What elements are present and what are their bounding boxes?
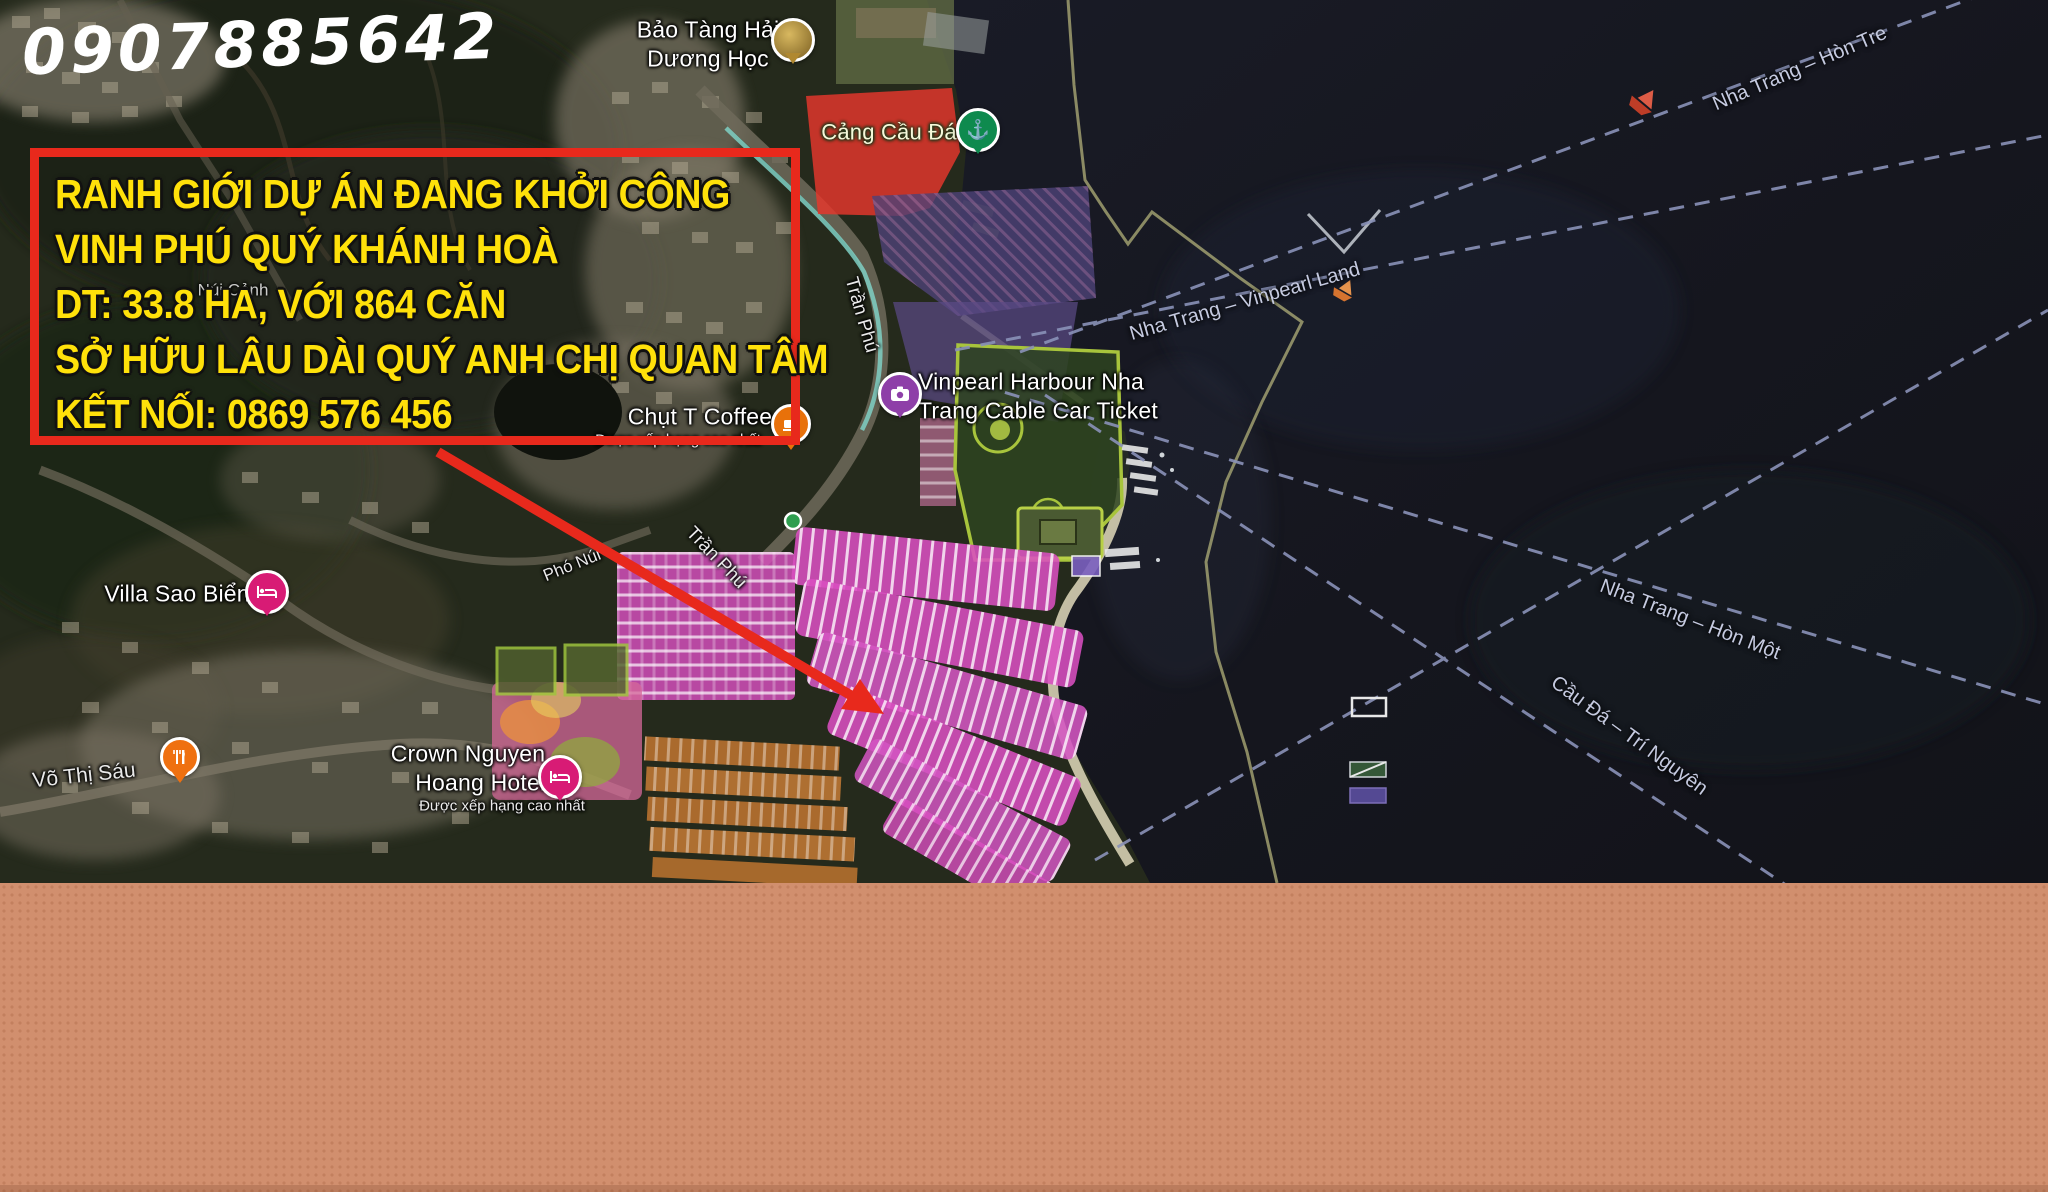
- sea-marker-purple: [1350, 788, 1386, 803]
- promo-screenshot-root: Núi Cảnh Trần Phú Trần Phú Phó Núi Võ Th…: [0, 0, 2048, 1192]
- poi-label-vinpearl-harbour[interactable]: Vinpearl Harbour NhaTrang Cable Car Tick…: [918, 367, 1158, 425]
- project-callout-box: RANH GIỚI DỰ ÁN ĐANG KHỞI CÔNG VINH PHÚ …: [30, 148, 800, 445]
- photo-circle-icon[interactable]: [771, 18, 815, 62]
- callout-line-4: SỞ HỮU LÂU DÀI QUÝ ANH CHỊ QUAN TÂM: [55, 332, 732, 387]
- camera-icon[interactable]: [878, 372, 922, 416]
- sea-marker-flag: [1350, 762, 1386, 777]
- poi-label-cang-cau-da[interactable]: Cảng Cầu Đá: [821, 118, 957, 146]
- poi-label-museum[interactable]: Bảo Tàng HảiDương Học: [637, 15, 780, 73]
- poi-label-villa-sao-bien[interactable]: Villa Sao Biển: [104, 580, 250, 609]
- lodging-bed-icon[interactable]: [538, 755, 582, 799]
- poi-label-crown-hotel[interactable]: Crown NguyenHoang Hotel: [391, 739, 546, 797]
- lodging-bed-icon[interactable]: [245, 570, 289, 614]
- callout-line-3: DT: 33.8 HA, VỚI 864 CĂN: [55, 277, 732, 332]
- ferry-anchor-icon[interactable]: ⚓: [956, 108, 1000, 152]
- bottom-band: [0, 883, 2048, 1192]
- callout-line-2: VINH PHÚ QUÝ KHÁNH HOÀ: [55, 222, 732, 277]
- restaurant-utensils-icon[interactable]: [160, 737, 200, 777]
- callout-line-5: KẾT NỐI: 0869 576 456: [55, 387, 732, 442]
- callout-line-1: RANH GIỚI DỰ ÁN ĐANG KHỞI CÔNG: [55, 167, 732, 222]
- transit-stop-dot: [785, 513, 801, 529]
